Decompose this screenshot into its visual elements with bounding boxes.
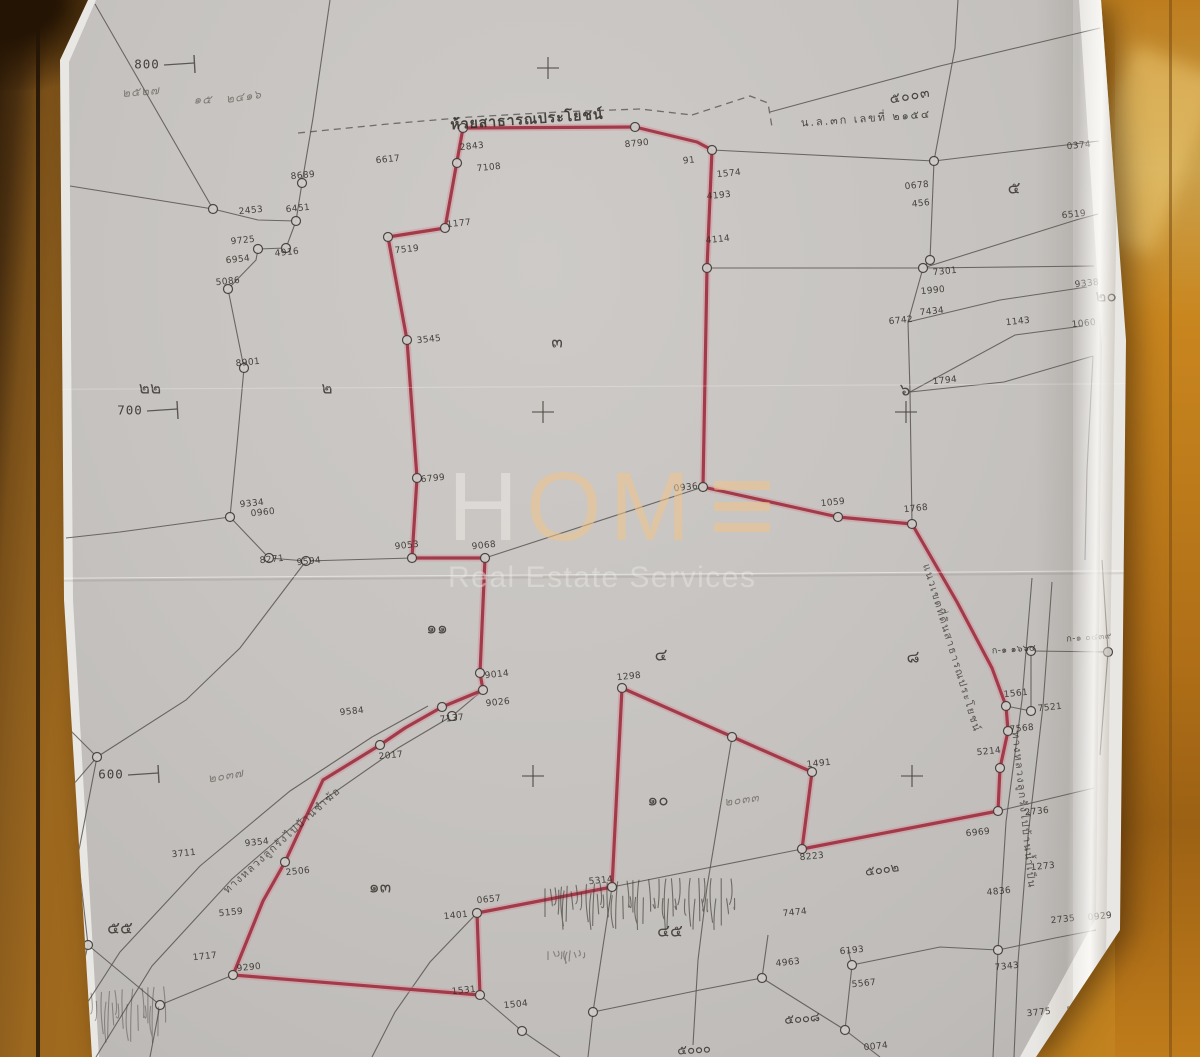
map-annotation: ๑๕ — [194, 91, 213, 110]
grid-tick — [128, 773, 158, 775]
grid-tick-bar — [194, 55, 195, 73]
survey-point-number: 91 — [682, 155, 695, 166]
parcel-number: ๑๑ — [426, 615, 448, 642]
survey-node — [841, 1026, 850, 1035]
survey-node — [453, 159, 462, 168]
parcel-line — [230, 517, 412, 561]
survey-node — [476, 991, 485, 1000]
survey-node — [254, 245, 263, 254]
survey-node — [703, 264, 712, 273]
survey-node — [403, 336, 412, 345]
survey-node — [994, 807, 1003, 816]
survey-node — [930, 157, 939, 166]
grid-tick-bar — [158, 765, 159, 783]
parcel-number: ๕ — [1008, 175, 1021, 202]
survey-node — [908, 520, 917, 529]
survey-node — [699, 483, 708, 492]
paper-shadow-wrap: ห้วยสาธารณประโยชน์น.ล.๓ก เลขที่ ๒๑๕๔๕๐๐๓… — [0, 0, 1200, 1057]
parcel-number: ๒๒ — [139, 375, 161, 402]
parcel-line — [852, 947, 998, 965]
parcel-line — [60, 757, 97, 800]
parcel-number: ๖ — [900, 377, 911, 404]
pencil-scribble — [548, 950, 585, 964]
parcel-number: ๑๐ — [647, 787, 668, 814]
survey-node — [93, 753, 102, 762]
survey-point-number: 456 — [911, 198, 930, 210]
survey-node — [209, 205, 218, 214]
parcel-line — [612, 849, 802, 887]
grid-coordinate-label: 800 — [134, 57, 160, 72]
grid-tick-bar — [177, 401, 178, 419]
survey-node — [476, 669, 485, 678]
survey-node — [376, 741, 385, 750]
survey-node — [919, 264, 928, 273]
parcel-line — [485, 487, 703, 558]
survey-map-sheet: ห้วยสาธารณประโยชน์น.ล.๓ก เลขที่ ๒๑๕๔๕๐๐๓… — [0, 0, 1200, 1057]
parcel-number: ๕๕ — [107, 915, 133, 942]
survey-node — [473, 909, 482, 918]
survey-node — [518, 1027, 527, 1036]
map-annotation: ๕๐๐๐ — [676, 1037, 711, 1057]
survey-node — [384, 233, 393, 242]
survey-node — [589, 1008, 598, 1017]
survey-node — [996, 764, 1005, 773]
survey-node — [84, 941, 93, 950]
survey-node — [226, 513, 235, 522]
canal-dashed-line — [692, 96, 772, 127]
survey-node — [728, 733, 737, 742]
photo-of-survey-map: ห้วยสาธารณประโยชน์น.ล.๓ก เลขที่ ๒๑๕๔๕๐๐๓… — [0, 0, 1200, 1057]
survey-node — [156, 1001, 165, 1010]
parcel-line — [97, 561, 306, 757]
pencil-scribble — [545, 878, 735, 930]
parcel-number: ๔ — [655, 642, 668, 669]
survey-node — [438, 703, 447, 712]
parcel-line — [0, 660, 97, 757]
survey-node — [281, 858, 290, 867]
parcel-line — [762, 935, 768, 978]
parcel-number: ๔๕ — [657, 918, 683, 945]
survey-node — [708, 146, 717, 155]
survey-node — [292, 217, 301, 226]
parcel-line — [593, 887, 612, 1012]
parcel-line — [66, 517, 230, 538]
survey-point-number: 5046 — [1066, 1004, 1091, 1017]
survey-node — [758, 974, 767, 983]
map-annotation: ๕๐๐๘ — [783, 1006, 820, 1030]
pencil-scribble — [60, 986, 166, 1043]
survey-node — [481, 554, 490, 563]
survey-node — [994, 946, 1003, 955]
parcel-number: ๘ — [906, 644, 919, 671]
grid-tick — [147, 409, 177, 411]
survey-map-linework — [0, 0, 1200, 1057]
grid-coordinate-label: 600 — [98, 767, 124, 782]
grid-tick — [164, 63, 194, 65]
survey-node — [926, 256, 935, 265]
parcel-line — [923, 161, 934, 268]
map-annotation: ๕๐๐๕ — [1046, 1036, 1082, 1057]
parcel-line — [70, 186, 213, 209]
parcel-line — [934, 0, 958, 161]
map-annotation: ๒๕๒๗ — [121, 81, 160, 103]
survey-node — [631, 123, 640, 132]
survey-node — [618, 684, 627, 693]
survey-node — [848, 961, 857, 970]
parcel-number: ๑๓ — [369, 874, 391, 901]
grid-coordinate-label: 700 — [117, 403, 143, 418]
parcel-number: ๒ — [321, 375, 332, 402]
survey-node — [479, 686, 488, 695]
parcel-number: ๓ — [551, 329, 563, 356]
survey-node — [408, 554, 417, 563]
parcel-line — [588, 1012, 593, 1057]
survey-node — [834, 513, 843, 522]
survey-node — [1002, 702, 1011, 711]
